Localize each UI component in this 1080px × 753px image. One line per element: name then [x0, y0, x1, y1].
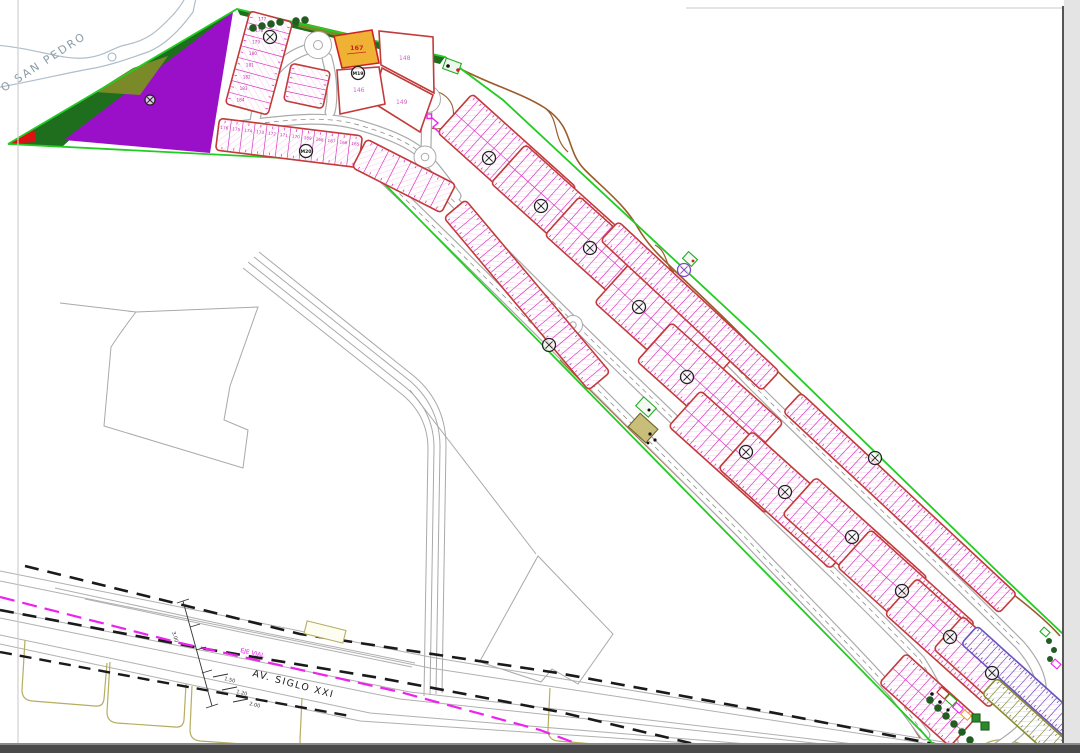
tree-icon — [926, 696, 934, 704]
site-dot — [648, 409, 651, 412]
avenue-label: AV. SIGLO XXI — [251, 668, 335, 700]
tree-icon — [1051, 647, 1057, 653]
tree-icon — [1046, 638, 1052, 644]
lot-number: 180 — [249, 51, 257, 56]
site-dot — [648, 432, 651, 435]
lot-number: 181 — [246, 63, 254, 68]
tree-icon — [942, 712, 950, 720]
block-marker — [986, 667, 999, 680]
site-dot — [653, 438, 656, 441]
block-marker — [483, 152, 496, 165]
site-icon — [304, 621, 346, 643]
parcel-ne-number: 148 — [399, 55, 411, 62]
tree-icon — [934, 704, 942, 712]
site-dot — [692, 260, 695, 263]
tree-icon — [267, 20, 275, 28]
block-marker — [869, 452, 882, 465]
block-marker — [145, 95, 155, 105]
site-dot — [930, 692, 934, 696]
site-plan-canvas: O SAN PEDRO — [0, 0, 1080, 753]
tree-icon — [249, 24, 257, 32]
tree-icon — [966, 736, 974, 744]
tree-icon — [292, 17, 300, 25]
tree-icon — [301, 16, 309, 24]
parcel-orange-number: 167 — [350, 44, 364, 52]
tree-icon — [1047, 656, 1053, 662]
block-marker — [944, 631, 957, 644]
fence-line — [410, 390, 536, 554]
parcel-se-number: 149 — [396, 99, 408, 106]
block-marker — [896, 585, 909, 598]
block-marker — [846, 531, 859, 544]
site-dot — [446, 64, 450, 68]
existing-track — [259, 252, 446, 693]
site-icon — [981, 722, 989, 730]
block-marker — [678, 264, 691, 277]
block-marker — [779, 486, 792, 499]
lot-number: 172 — [268, 131, 277, 137]
tree-icon — [950, 720, 958, 728]
block-marker-label: M19 — [353, 71, 364, 77]
multifamily-parcels: 167 148 146 149 — [334, 30, 434, 132]
lot-number: 165 — [351, 141, 360, 147]
river-node — [108, 53, 116, 61]
lot-number: 167 — [327, 138, 336, 144]
site-icon — [972, 714, 980, 722]
lot-number: 169 — [303, 135, 312, 141]
dimension-label: 2.00 — [249, 701, 261, 710]
block-mini-row — [283, 63, 330, 108]
block-marker — [584, 242, 597, 255]
tree-icon — [258, 22, 266, 30]
lot-number: 179 — [252, 40, 260, 45]
lot-number: 173 — [256, 129, 265, 135]
block-marker — [633, 301, 646, 314]
lot-number: 170 — [292, 134, 301, 140]
block-marker: M19 — [352, 67, 365, 80]
block-marker — [681, 371, 694, 384]
block-marker — [543, 339, 556, 352]
lot-number: 175 — [232, 126, 241, 132]
block-marker — [535, 200, 548, 213]
block-marker: M20 — [300, 145, 313, 158]
river-label: O SAN PEDRO — [0, 30, 89, 95]
lot-number: 168 — [315, 136, 324, 142]
lot-number: 184 — [236, 98, 244, 103]
dimension-label: 1.50 — [224, 676, 236, 685]
block-marker-label: M20 — [301, 149, 312, 155]
block-marker — [740, 446, 753, 459]
parcel-s-number: 146 — [353, 87, 365, 94]
site-icon — [1040, 627, 1050, 637]
tree-icon — [958, 728, 966, 736]
site-dot — [946, 708, 949, 711]
existing-building-outline — [60, 303, 258, 468]
block-marker — [264, 31, 277, 44]
lot-number: 174 — [244, 128, 253, 134]
scanned-site-plan-page: O SAN PEDRO — [0, 0, 1080, 753]
lot-number: 183 — [240, 86, 248, 91]
lot-number: 176 — [220, 125, 229, 131]
lot-number: 171 — [280, 132, 289, 138]
lot-number: 182 — [243, 74, 251, 79]
site-dot — [938, 700, 942, 704]
lot-number: 166 — [339, 139, 348, 145]
site-dot — [647, 442, 650, 445]
lot-number: 177 — [258, 16, 266, 21]
tree-icon — [276, 18, 284, 26]
site-dot — [456, 68, 460, 72]
